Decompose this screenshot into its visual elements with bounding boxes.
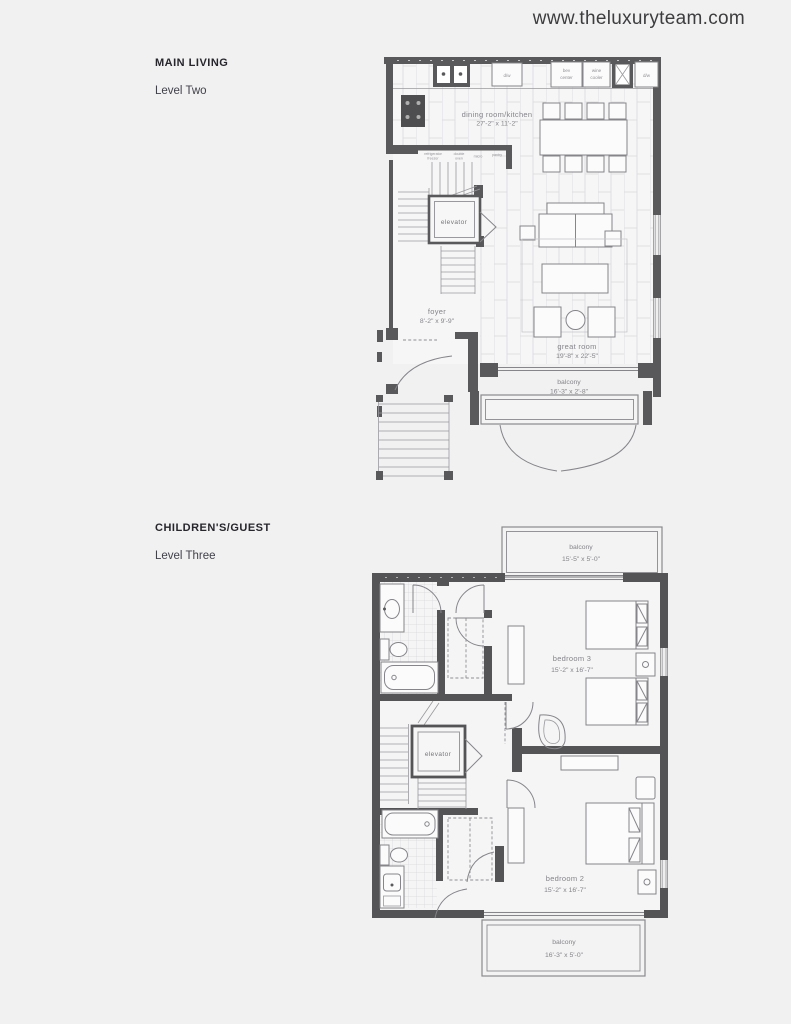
floor-plan-level-three: balcony 15'-5" x 5'-0" bbox=[365, 520, 675, 985]
svg-text:bev: bev bbox=[563, 68, 571, 73]
section-title-childrens-guest: CHILDREN'S/GUEST bbox=[155, 522, 271, 534]
bedroom3-dims: 15'-2" x 16'-7" bbox=[551, 667, 593, 674]
round-table bbox=[566, 311, 585, 330]
double-door-swings bbox=[500, 425, 636, 471]
great-room-dims: 19'-8" x 22'-5" bbox=[556, 353, 598, 360]
balcony-top-dims: 15'-5" x 5'-0" bbox=[562, 556, 601, 563]
bedroom3-label: bedroom 3 bbox=[553, 654, 592, 663]
svg-text:pantry: pantry bbox=[492, 153, 502, 157]
window-bedroom2 bbox=[661, 860, 668, 888]
bedroom2-dims: 15'-2" x 16'-7" bbox=[544, 887, 586, 894]
nightstand-2 bbox=[638, 870, 656, 894]
balcony-label: balcony bbox=[557, 379, 581, 386]
svg-text:wine: wine bbox=[592, 68, 602, 73]
foyer-label: foyer bbox=[428, 307, 446, 316]
svg-text:cooler: cooler bbox=[590, 75, 603, 80]
great-room-label: great room bbox=[557, 342, 596, 351]
elevator: elevator bbox=[429, 196, 480, 243]
svg-text:freezer: freezer bbox=[427, 157, 439, 161]
balcony-bottom-dims: 16'-3" x 5'-0" bbox=[545, 952, 584, 959]
dining-kitchen-label: dining room/kitchen bbox=[462, 110, 533, 119]
chair bbox=[636, 777, 655, 799]
armrest-table bbox=[605, 231, 621, 246]
wardrobe bbox=[508, 808, 524, 863]
armchair-left bbox=[534, 307, 561, 337]
floor-plan-level-two: d/w bev center wine cooler d/w refrigera… bbox=[370, 45, 670, 490]
balcony-top bbox=[502, 527, 662, 577]
window-right-upper bbox=[654, 215, 661, 255]
balcony-top-label: balcony bbox=[569, 544, 593, 551]
window-right-lower bbox=[654, 298, 661, 338]
balcony bbox=[481, 395, 638, 424]
coffee-table bbox=[542, 264, 608, 293]
website-url: www.theluxuryteam.com bbox=[533, 8, 745, 30]
exterior-stairs bbox=[376, 395, 453, 480]
balcony-bottom-label: balcony bbox=[552, 939, 576, 946]
svg-text:center: center bbox=[560, 75, 573, 80]
beverage-center: bev center bbox=[551, 62, 582, 87]
svg-text:elevator: elevator bbox=[425, 751, 452, 758]
dishwasher-1: d/w bbox=[492, 63, 522, 86]
svg-text:d/w: d/w bbox=[643, 73, 651, 78]
nightstand bbox=[636, 653, 655, 676]
svg-text:elevator: elevator bbox=[441, 219, 468, 226]
svg-text:micro: micro bbox=[474, 155, 483, 159]
toilet bbox=[390, 643, 407, 657]
elevator-level-three: elevator bbox=[412, 726, 465, 777]
bed bbox=[586, 803, 654, 864]
sink-2 bbox=[384, 874, 401, 891]
dishwasher-2: d/w bbox=[635, 62, 658, 87]
svg-text:d/w: d/w bbox=[503, 73, 511, 78]
side-table bbox=[520, 226, 535, 240]
sliding-door bbox=[498, 368, 638, 371]
sliding-door-bottom bbox=[484, 913, 644, 916]
window-bedroom3 bbox=[661, 648, 668, 676]
section-level-three: Level Three bbox=[155, 550, 216, 562]
bedroom2-label: bedroom 2 bbox=[546, 874, 585, 883]
armchair-right bbox=[588, 307, 615, 337]
toilet-2 bbox=[391, 848, 408, 862]
toilet-tank-2 bbox=[380, 845, 389, 865]
wine-cooler: wine cooler bbox=[583, 62, 610, 87]
range bbox=[401, 95, 425, 127]
dresser bbox=[508, 626, 524, 684]
svg-text:oven: oven bbox=[455, 157, 463, 161]
svg-text:refrigerator: refrigerator bbox=[424, 152, 442, 156]
balcony-bottom bbox=[482, 920, 645, 976]
svg-text:double: double bbox=[454, 152, 465, 156]
sink bbox=[385, 600, 400, 619]
section-title-main-living: MAIN LIVING bbox=[155, 57, 228, 69]
dining-kitchen-dims: 27'-2" x 11'-2" bbox=[476, 121, 518, 128]
dresser-long bbox=[561, 756, 618, 770]
kitchen-sink bbox=[433, 62, 470, 87]
prep-sink bbox=[612, 61, 633, 88]
foyer-dims: 8'-2" x 9'-9" bbox=[420, 318, 455, 325]
section-level-two: Level Two bbox=[155, 85, 207, 97]
sofa-back bbox=[547, 203, 604, 214]
toilet-tank bbox=[380, 639, 389, 660]
